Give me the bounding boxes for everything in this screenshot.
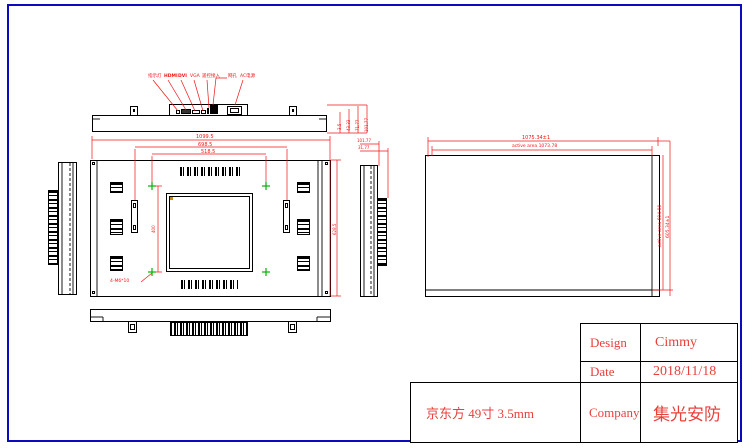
top-depth-dim-2: 43.33 (347, 120, 351, 131)
date-value: 2018/11/18 (653, 364, 716, 380)
back-corner-screw-bl (92, 291, 95, 294)
back-corner-screw-tl (92, 162, 95, 165)
back-height-dim: 628.5 (333, 224, 337, 235)
date-label: Date (590, 364, 615, 380)
front-outline-width-dim: 1075.34±1 (522, 136, 550, 141)
right-side-vent-box (377, 198, 387, 266)
back-top-vent-grille (180, 167, 240, 176)
title-cell-design-label: Design (580, 323, 641, 362)
top-depth-dim-3: 71.77 (356, 120, 360, 131)
side-depth-dim-2: 31.77 (358, 146, 369, 150)
back-corner-screw-tr (325, 162, 328, 165)
back-vent-left-3 (110, 256, 123, 271)
back-handle-left-hole-top (133, 203, 136, 208)
led-indicator-port (176, 110, 180, 114)
back-vent-right-1 (297, 182, 310, 193)
left-side-view-body (58, 162, 77, 295)
dvi-port (192, 110, 200, 114)
width-dim-overall: 1099.5 (196, 135, 214, 140)
design-value: Cimmy (655, 335, 697, 351)
bottom-foot-right-hole (290, 324, 295, 330)
back-vent-left-2 (110, 219, 123, 235)
hdmi-port (181, 109, 191, 114)
connector-label-led: 指示灯 (148, 75, 162, 80)
back-corner-screw-br (325, 291, 328, 294)
back-handle-left-hole-bottom (133, 225, 136, 230)
bottom-foot-left-hole (130, 324, 135, 330)
front-view-body (425, 155, 660, 297)
title-cell-company-label: Company (580, 382, 641, 443)
mesh-vent (210, 105, 218, 114)
mount-screw-note: 4-M6*10 (110, 280, 129, 285)
company-value: 集光安防 (653, 400, 721, 425)
front-active-width-dim: active area 1073.78 (512, 145, 557, 150)
title-cell-date-label: Date (580, 361, 641, 383)
back-bottom-vent-grille (181, 280, 238, 289)
top-view-tab-right-hole (292, 109, 294, 112)
top-depth-dim-1: 3.5 (338, 124, 342, 130)
product-label: 京东方 49寸 3.5mm (426, 403, 534, 422)
company-label: Company (589, 405, 640, 421)
width-dim-vesa: 518.5 (201, 150, 215, 155)
back-window-inner (169, 196, 250, 269)
title-cell-date-value: 2018/11/18 (640, 361, 738, 383)
connector-label-vga: VGA (190, 75, 200, 80)
connector-label-ac: AC电源 (240, 75, 255, 80)
title-cell-design-value: Cimmy (640, 323, 738, 362)
product-label-box: 京东方 49寸 3.5mm (410, 382, 581, 443)
top-view-tab-left-hole (133, 109, 135, 112)
title-cell-company-value: 集光安防 (640, 382, 738, 443)
connector-label-dvi: DVI (178, 75, 187, 80)
right-side-view-body (360, 165, 378, 297)
side-depth-dim-1: 101.77 (357, 139, 371, 143)
bottom-connector-grille (170, 322, 248, 336)
top-view-body (92, 115, 327, 132)
front-outline-height-dim: 605.34±1 (667, 216, 672, 238)
ac-power-inlet-inner (230, 108, 239, 113)
width-dim-handles: 698.5 (198, 143, 212, 148)
back-window-corner-mark (170, 197, 173, 200)
vga-port (201, 110, 206, 114)
back-vent-right-2 (297, 219, 310, 235)
top-depth-dim-4: 101.77 (365, 118, 369, 132)
left-side-vent-box (48, 190, 58, 265)
back-vent-right-3 (297, 256, 310, 271)
back-handle-right-hole-bottom (285, 225, 288, 230)
design-label: Design (590, 335, 627, 351)
back-vent-left-1 (110, 182, 123, 193)
connector-label-mesh: 网孔 (228, 75, 237, 80)
front-active-height-dim: active area 604.00 (659, 205, 664, 247)
drawing-sheet: 指示灯 HDMI DVI VGA 遥控接入 网孔 AC电源 3.5 43.33 … (0, 0, 748, 448)
back-handle-right-hole-top (285, 203, 288, 208)
connector-label-remote: 遥控接入 (202, 75, 220, 80)
vesa-vertical-dim: 400 (152, 225, 156, 233)
remote-port (207, 108, 209, 114)
connector-label-hdmi: HDMI (164, 75, 178, 80)
